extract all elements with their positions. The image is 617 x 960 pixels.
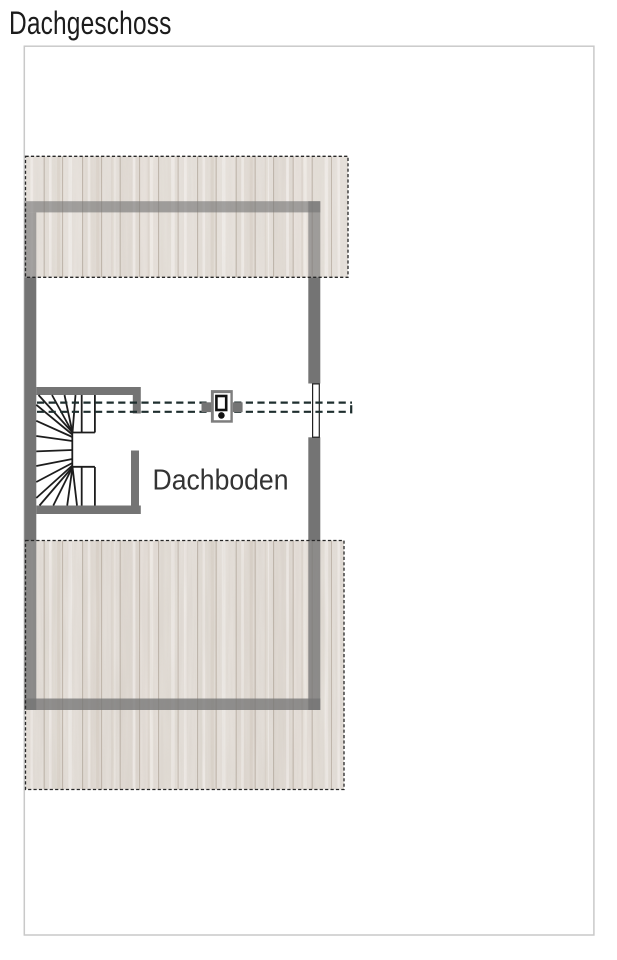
- svg-text:Dachboden: Dachboden: [153, 464, 289, 496]
